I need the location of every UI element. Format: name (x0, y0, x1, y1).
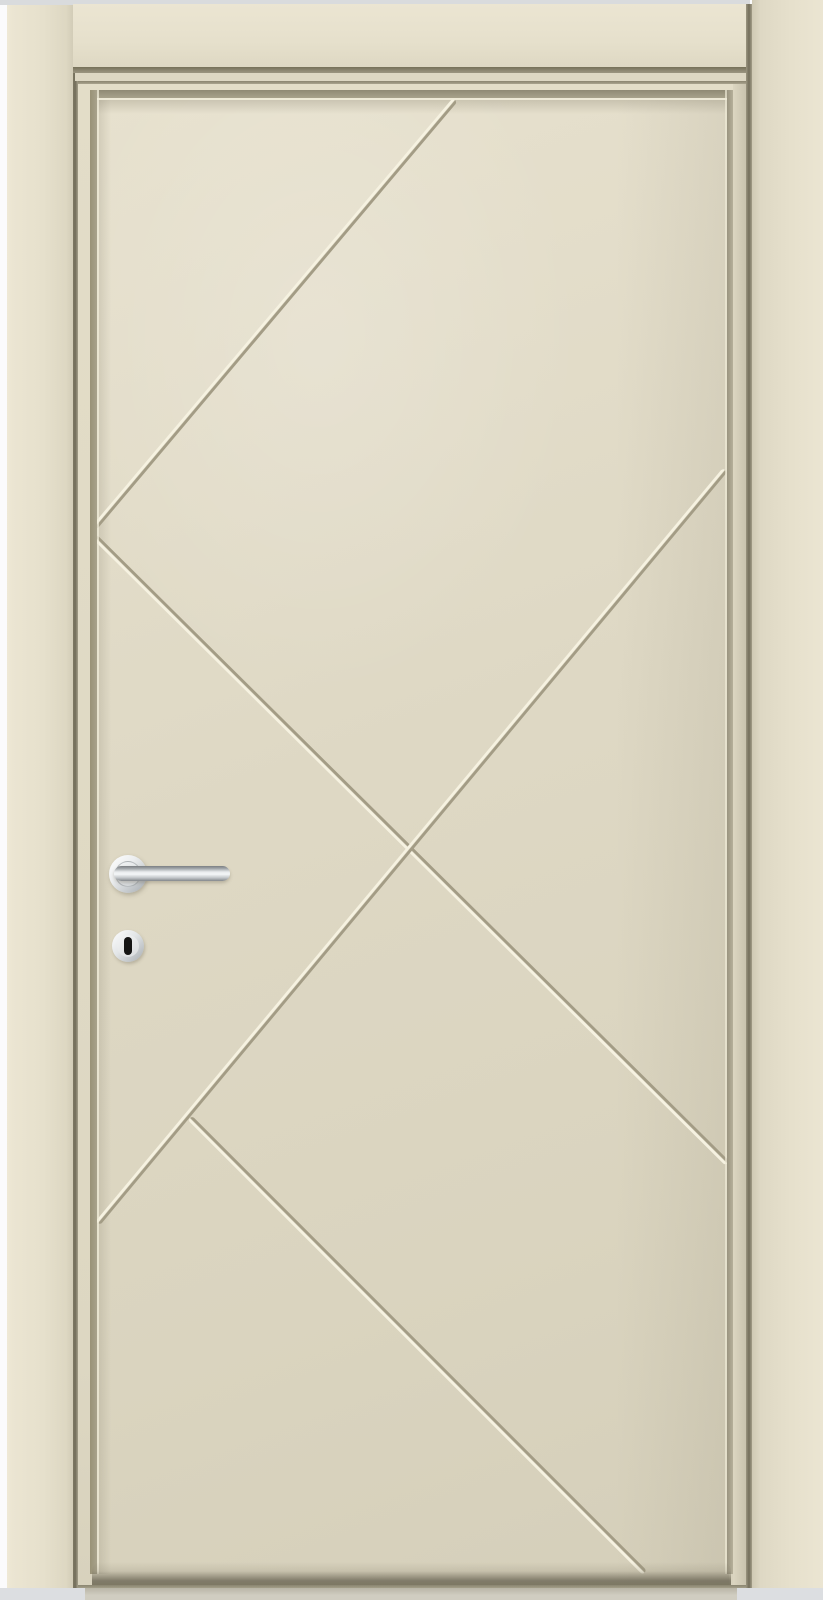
frame-left-casing (7, 5, 73, 1590)
panel-top-shading (97, 98, 729, 114)
door-right-border-shade (733, 84, 746, 1588)
frame-right-seam (746, 4, 752, 1590)
frame-right-jamb (752, 0, 823, 1590)
panel-left-shading (97, 98, 111, 1574)
floor-under-door (85, 1588, 737, 1600)
keyhole-slot-icon (124, 937, 132, 955)
door-product-image (0, 0, 823, 1600)
frame-head-casing (73, 4, 752, 67)
frame-head-stop (75, 73, 748, 81)
panel-bevel-top (90, 90, 733, 98)
panel-bevel-left (90, 90, 97, 1574)
panel-bevel-right (727, 90, 733, 1574)
lever-handle (114, 866, 230, 881)
